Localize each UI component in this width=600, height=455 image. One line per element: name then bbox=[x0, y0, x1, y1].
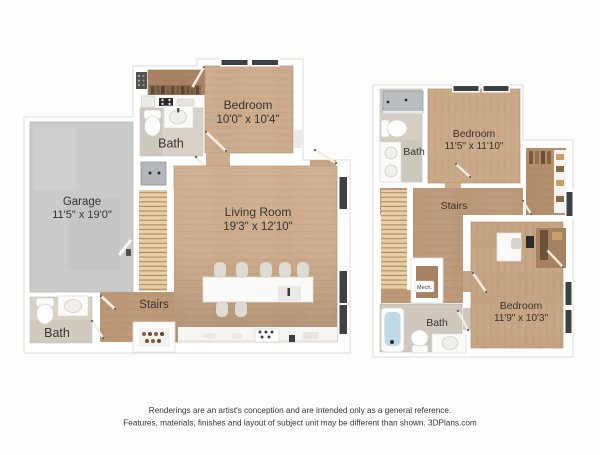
svg-text:Living Room: Living Room bbox=[225, 205, 292, 219]
svg-text:10'0" x 10'4": 10'0" x 10'4" bbox=[216, 114, 279, 126]
svg-text:Stairs: Stairs bbox=[139, 299, 169, 311]
svg-text:11'5" x 11'10": 11'5" x 11'10" bbox=[445, 141, 504, 152]
svg-text:Bath: Bath bbox=[403, 146, 425, 158]
svg-text:Bedroom: Bedroom bbox=[224, 98, 273, 112]
svg-text:11'9" x 10'3": 11'9" x 10'3" bbox=[494, 313, 549, 324]
svg-text:Mech.: Mech. bbox=[417, 285, 432, 291]
svg-text:11'5" x 19'0": 11'5" x 19'0" bbox=[52, 209, 112, 221]
svg-text:19'3" x 12'10": 19'3" x 12'10" bbox=[223, 221, 292, 233]
svg-text:Bath: Bath bbox=[158, 137, 184, 151]
svg-text:Bedroom: Bedroom bbox=[500, 300, 543, 312]
svg-text:Garage: Garage bbox=[63, 196, 101, 208]
svg-text:Bath: Bath bbox=[44, 326, 70, 340]
svg-text:Renderings are an artist's con: Renderings are an artist's conception an… bbox=[149, 406, 451, 415]
svg-text:Bedroom: Bedroom bbox=[453, 128, 496, 140]
svg-text:Bath: Bath bbox=[426, 317, 448, 329]
svg-text:Stairs: Stairs bbox=[441, 200, 468, 212]
svg-text:Features, materials, finishes: Features, materials, finishes and layout… bbox=[123, 419, 477, 428]
